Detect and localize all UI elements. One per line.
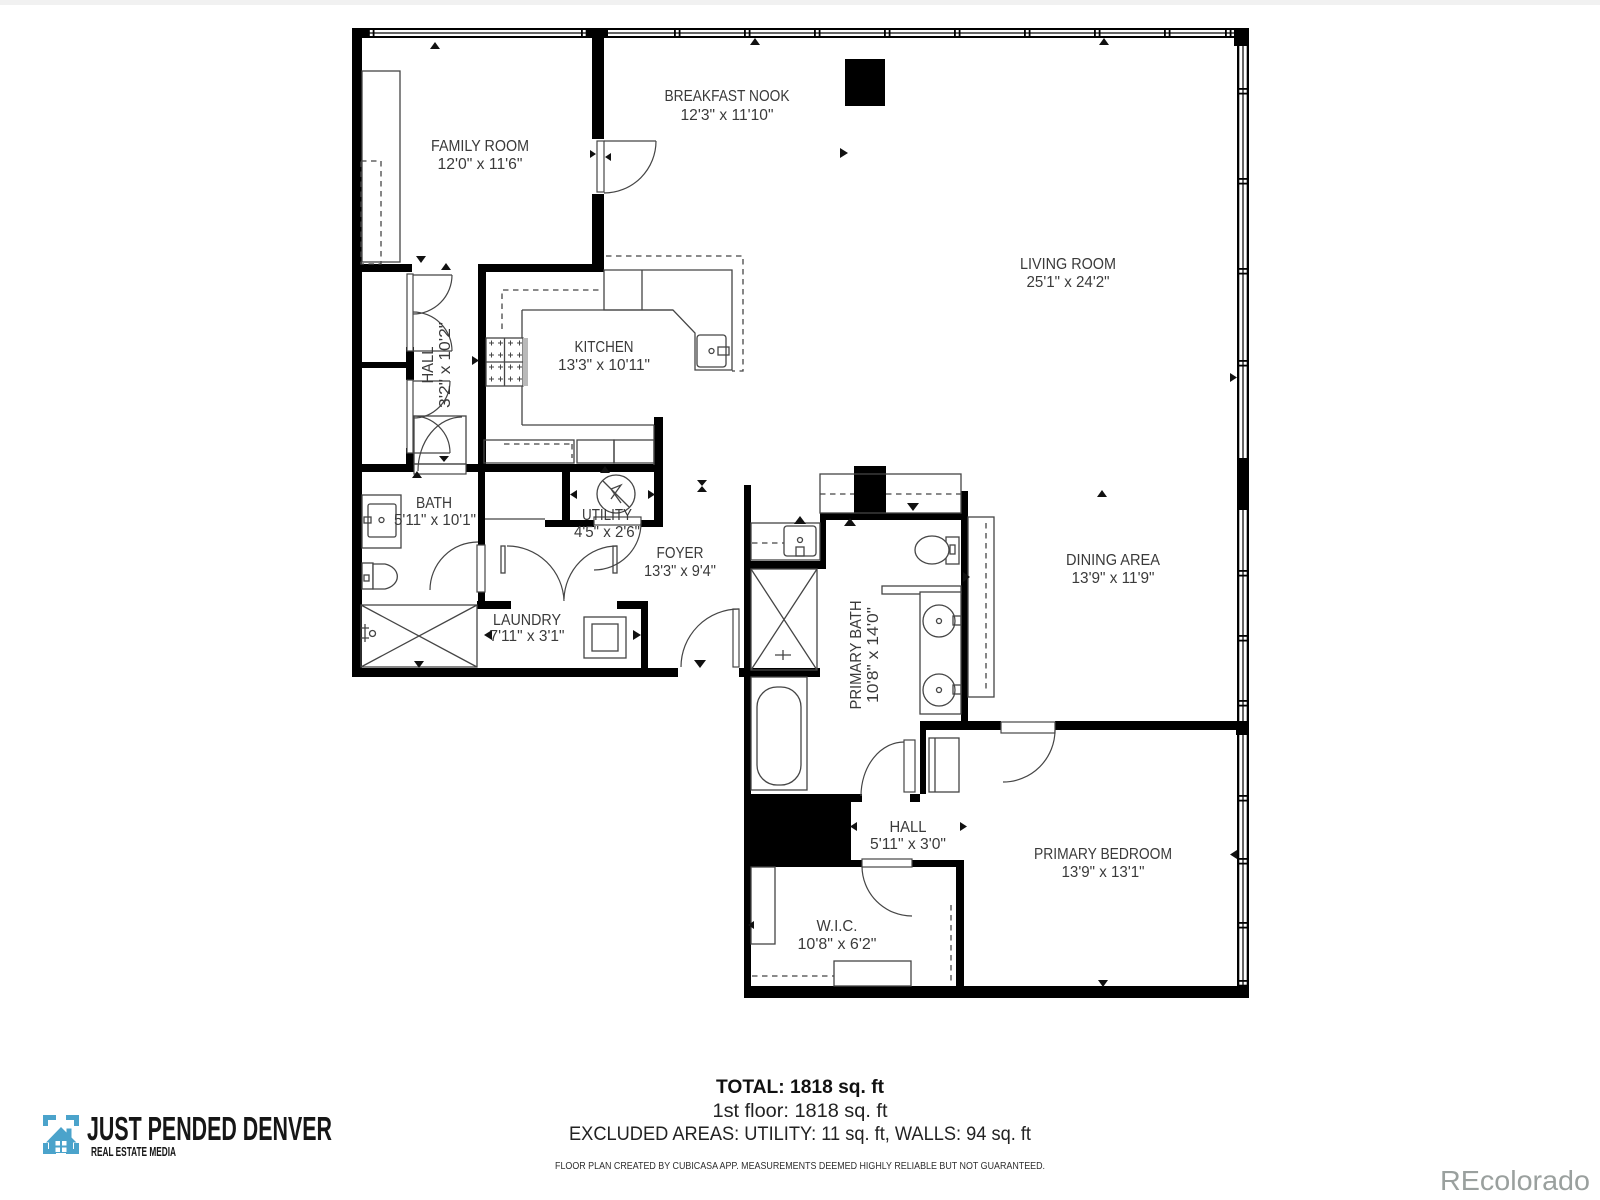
svg-text:KITCHEN: KITCHEN bbox=[575, 339, 634, 356]
svg-text:PRIMARY BEDROOM: PRIMARY BEDROOM bbox=[1034, 846, 1172, 863]
svg-text:HALL: HALL bbox=[890, 819, 927, 836]
svg-text:EXCLUDED AREAS: UTILITY: 11 sq: EXCLUDED AREAS: UTILITY: 11 sq. ft, WALL… bbox=[569, 1124, 1032, 1145]
svg-text:13'9" x 13'1": 13'9" x 13'1" bbox=[1062, 864, 1145, 881]
svg-text:12'3" x 11'10": 12'3" x 11'10" bbox=[681, 107, 774, 124]
svg-text:LIVING ROOM: LIVING ROOM bbox=[1020, 256, 1116, 273]
svg-text:TOTAL: 1818 sq. ft: TOTAL: 1818 sq. ft bbox=[716, 1077, 885, 1098]
svg-text:12'0" x 11'6": 12'0" x 11'6" bbox=[438, 156, 523, 173]
svg-text:FAMILY ROOM: FAMILY ROOM bbox=[431, 138, 529, 155]
svg-text:4'5" x 2'6": 4'5" x 2'6" bbox=[574, 524, 640, 541]
svg-text:7'11" x 3'1": 7'11" x 3'1" bbox=[490, 628, 565, 645]
svg-text:5'11" x 10'1": 5'11" x 10'1" bbox=[394, 512, 476, 529]
svg-text:BREAKFAST NOOK: BREAKFAST NOOK bbox=[665, 88, 791, 105]
svg-text:UTILITY: UTILITY bbox=[582, 507, 632, 524]
svg-text:DINING AREA: DINING AREA bbox=[1066, 552, 1161, 569]
svg-text:W.I.C.: W.I.C. bbox=[817, 918, 858, 935]
svg-text:10'8" x 14'0": 10'8" x 14'0" bbox=[865, 607, 882, 703]
svg-text:JUST PENDED DENVER: JUST PENDED DENVER bbox=[87, 1110, 332, 1147]
svg-text:13'3" x 9'4": 13'3" x 9'4" bbox=[644, 563, 716, 580]
svg-text:REAL ESTATE MEDIA: REAL ESTATE MEDIA bbox=[91, 1144, 176, 1159]
svg-text:FLOOR PLAN CREATED BY CUBICASA: FLOOR PLAN CREATED BY CUBICASA APP. MEAS… bbox=[555, 1161, 1045, 1172]
svg-text:HALL: HALL bbox=[420, 346, 437, 383]
svg-text:LAUNDRY: LAUNDRY bbox=[493, 612, 561, 629]
svg-text:FOYER: FOYER bbox=[657, 545, 704, 562]
svg-text:REcolorado: REcolorado bbox=[1440, 1165, 1590, 1196]
svg-text:10'8" x 6'2": 10'8" x 6'2" bbox=[798, 936, 877, 953]
svg-text:25'1" x 24'2": 25'1" x 24'2" bbox=[1027, 274, 1110, 291]
svg-text:13'9" x 11'9": 13'9" x 11'9" bbox=[1072, 570, 1155, 587]
svg-text:13'3" x 10'11": 13'3" x 10'11" bbox=[558, 357, 650, 374]
svg-text:1st floor: 1818 sq. ft: 1st floor: 1818 sq. ft bbox=[713, 1101, 889, 1122]
svg-text:3'2" x 10'2": 3'2" x 10'2" bbox=[437, 322, 454, 408]
svg-text:5'11" x 3'0": 5'11" x 3'0" bbox=[870, 836, 946, 853]
svg-text:BATH: BATH bbox=[416, 495, 452, 512]
svg-text:PRIMARY BATH: PRIMARY BATH bbox=[848, 601, 865, 710]
